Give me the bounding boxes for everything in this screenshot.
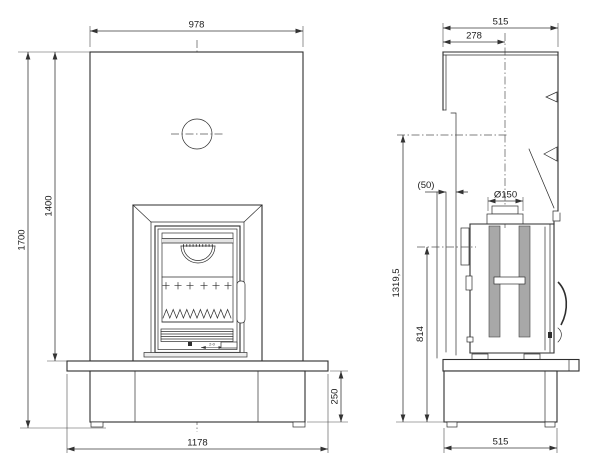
door-handle [237, 281, 245, 323]
side-door-latch [558, 328, 561, 342]
hood-front-bracket [553, 211, 560, 221]
air-slider-label: 2-0 [209, 342, 216, 347]
air-vent-grill [161, 329, 233, 342]
dim-label-278: 278 [466, 31, 482, 42]
flue-collar [487, 206, 523, 224]
front-view: 2-0 978 1700 [17, 20, 349, 454]
dim-label-515-top: 515 [493, 17, 509, 28]
dim-label-515-bottom: 515 [493, 437, 509, 448]
slot-crossbar [494, 277, 525, 284]
fireplace-technical-drawing: 2-0 978 1700 [0, 0, 600, 474]
plinth-foot-rear [447, 422, 457, 427]
dim-label-978: 978 [189, 20, 205, 31]
dim-label-1400: 1400 [44, 195, 55, 216]
bench-slab-side [443, 360, 579, 372]
plinth-front [90, 371, 305, 422]
dim-depth-top: 515 [443, 17, 558, 48]
bench-side [443, 360, 579, 428]
plinth-foot-left [91, 422, 103, 427]
bench-slab-front [67, 361, 328, 371]
stove-foot-front [524, 354, 540, 360]
dim-plinth-height: 250 [307, 371, 348, 422]
side-door-handle [558, 282, 566, 325]
dim-panel-height: 1400 [44, 52, 68, 361]
latch-block [548, 332, 552, 338]
dim-depth-bottom: 515 [444, 428, 557, 453]
stove-door: 2-0 [144, 226, 247, 357]
dim-wall-gap: (50) [418, 180, 468, 192]
name-plate [221, 342, 237, 348]
plinth-foot-right [293, 422, 305, 427]
dim-label-1700: 1700 [17, 229, 28, 250]
dim-label-1319-5: 1319,5 [391, 268, 402, 297]
stove-foot-rear [472, 354, 488, 360]
door-air-band [162, 239, 233, 244]
rear-outlet-cover [461, 228, 469, 265]
hood-baffle [529, 149, 554, 208]
rear-fitting [467, 337, 473, 342]
dim-panel-width: 978 [90, 20, 303, 48]
hood-rear-edge [451, 113, 456, 355]
airflow-arrow-upper [546, 92, 557, 102]
dim-label-1178: 1178 [187, 438, 207, 449]
stove-body-side [461, 222, 566, 360]
door-latch [188, 342, 192, 346]
airflow-arrow-lower [544, 147, 557, 161]
rear-latch [466, 276, 472, 290]
door-sill [144, 353, 247, 358]
side-view: 515 278 (50) Ø150 1319,5 814 [391, 17, 579, 454]
plinth-foot-front [545, 422, 555, 427]
technical-drawing-page: 2-0 978 1700 [0, 0, 600, 474]
bench-front [67, 361, 328, 427]
dim-label-250: 250 [330, 389, 341, 405]
dim-label-diameter-150: Ø150 [494, 190, 517, 201]
dim-label-814: 814 [415, 326, 426, 342]
plinth-side [444, 371, 557, 422]
dim-label-50: (50) [418, 180, 435, 191]
dim-flue-offset: 278 [443, 31, 505, 43]
